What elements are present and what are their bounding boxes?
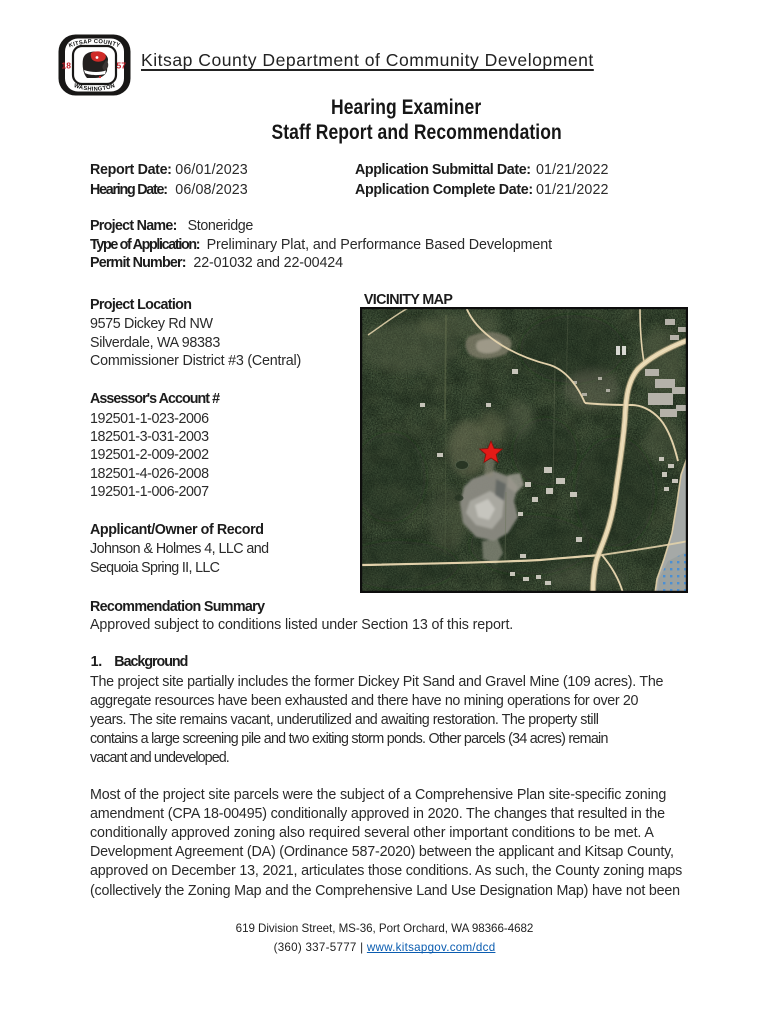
svg-text:18: 18 [62,61,72,71]
svg-text:57: 57 [117,61,127,71]
